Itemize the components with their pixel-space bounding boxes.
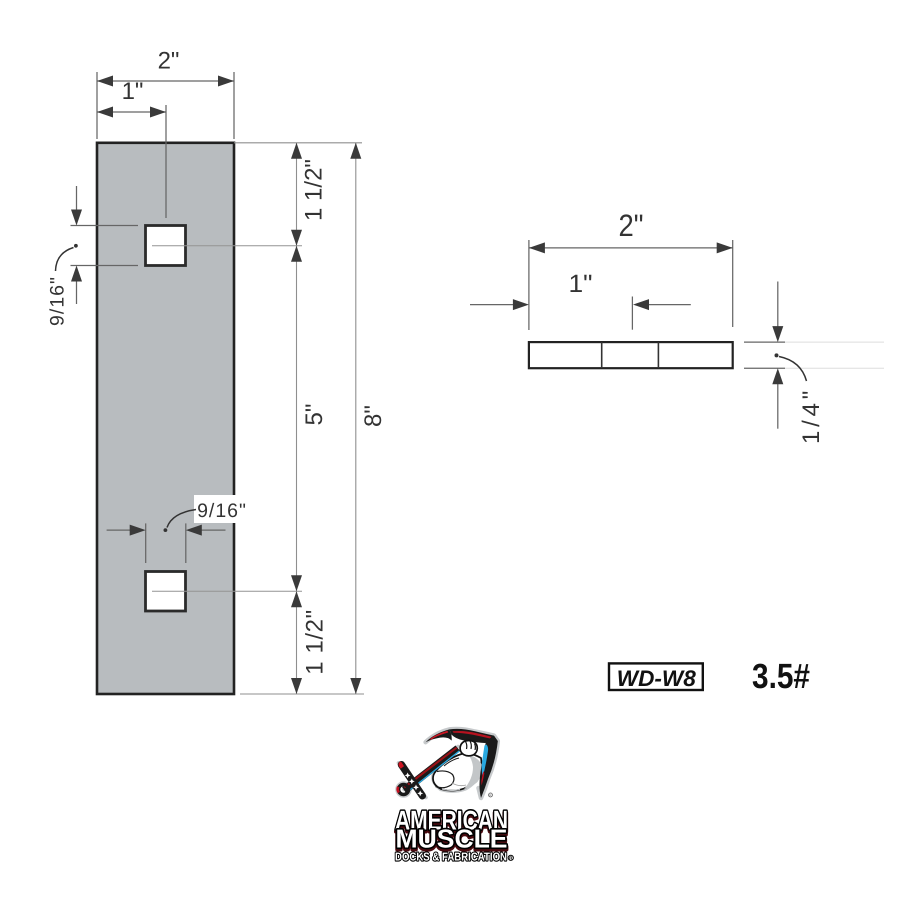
svg-text:2": 2" [619, 208, 644, 243]
svg-text:5": 5" [301, 404, 328, 426]
svg-text:1": 1" [122, 78, 144, 105]
svg-text:WD-W8: WD-W8 [617, 666, 696, 691]
svg-text:2": 2" [158, 48, 180, 75]
svg-text:1 1/2": 1 1/2" [301, 159, 328, 221]
svg-text:1/4": 1/4" [798, 387, 825, 444]
svg-text:1": 1" [569, 270, 593, 298]
svg-text:8": 8" [360, 405, 387, 427]
svg-text:9/16": 9/16" [197, 500, 247, 522]
svg-text:9/16": 9/16" [47, 276, 69, 326]
svg-text:3.5#: 3.5# [752, 657, 810, 696]
svg-text:1 1/2": 1 1/2" [302, 609, 329, 675]
svg-text:DOCKS & FABRICATION: DOCKS & FABRICATION [395, 852, 507, 864]
svg-text:MUSCLE: MUSCLE [396, 824, 508, 854]
